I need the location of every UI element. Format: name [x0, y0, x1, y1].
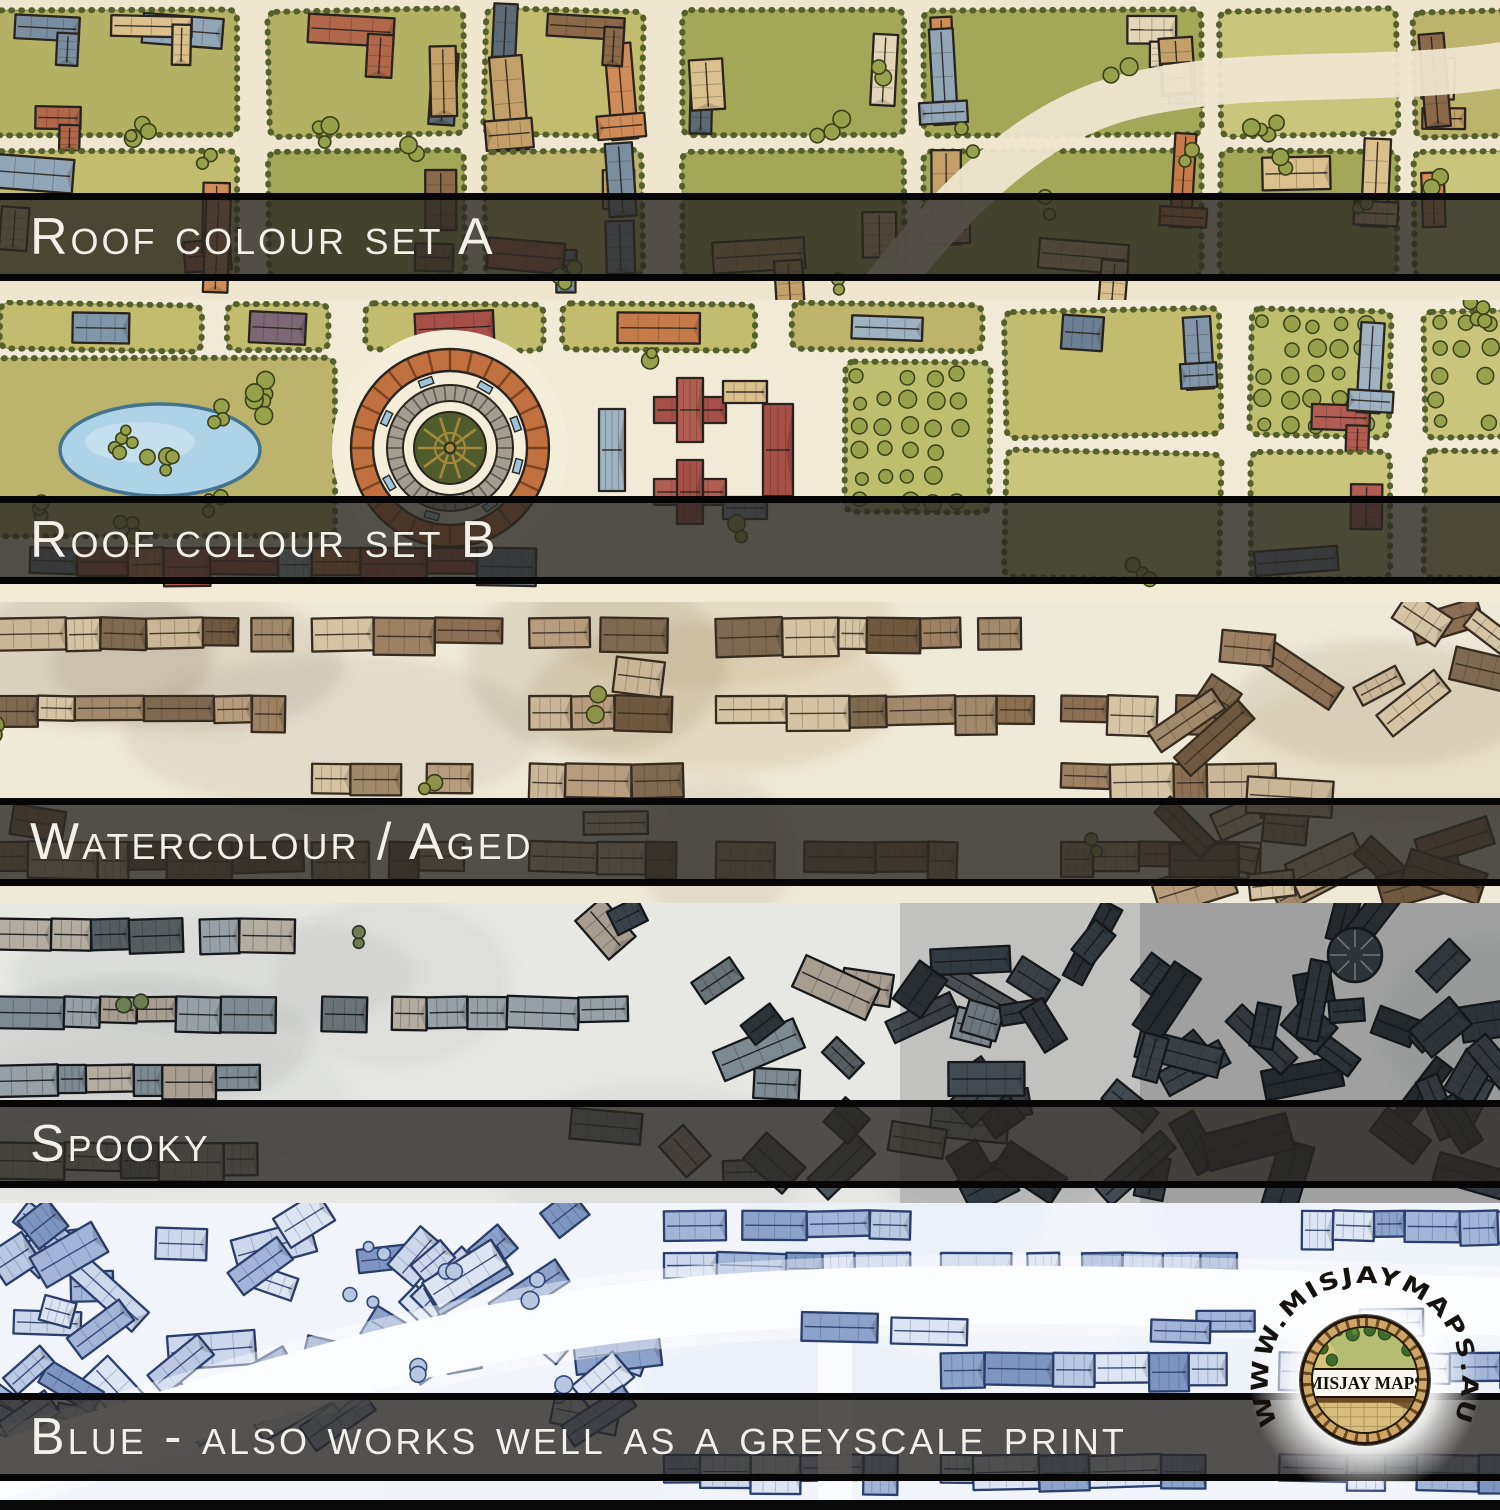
logo-arc-text-art: WWW.MISJAYMAPS.AU	[1235, 1250, 1495, 1510]
variant-label-blue: Blue - also works well as a greyscale pr…	[0, 1400, 1127, 1474]
variant-label-roof-colour-set-a: Roof colour set A	[0, 200, 496, 274]
variant-label-watercolour-aged: Watercolour / Aged	[0, 805, 534, 879]
label-bar-roof-colour-set-b: Roof colour set B	[0, 496, 1500, 584]
logo-arc-text: WWW.MISJAYMAPS.AU	[1247, 1263, 1482, 1430]
misjay-maps-logo: MISJAY MAPS	[1235, 1250, 1495, 1510]
variant-label-spooky: Spooky	[0, 1107, 211, 1181]
label-bar-spooky: Spooky	[0, 1100, 1500, 1188]
map-preview-image: Roof colour set A Roof colour set B Wate…	[0, 0, 1500, 1500]
label-bar-watercolour-aged: Watercolour / Aged	[0, 798, 1500, 886]
svg-text:WWW.MISJAYMAPS.AU: WWW.MISJAYMAPS.AU	[1247, 1263, 1482, 1430]
variant-label-roof-colour-set-b: Roof colour set B	[0, 503, 499, 577]
label-bar-roof-colour-set-a: Roof colour set A	[0, 193, 1500, 281]
